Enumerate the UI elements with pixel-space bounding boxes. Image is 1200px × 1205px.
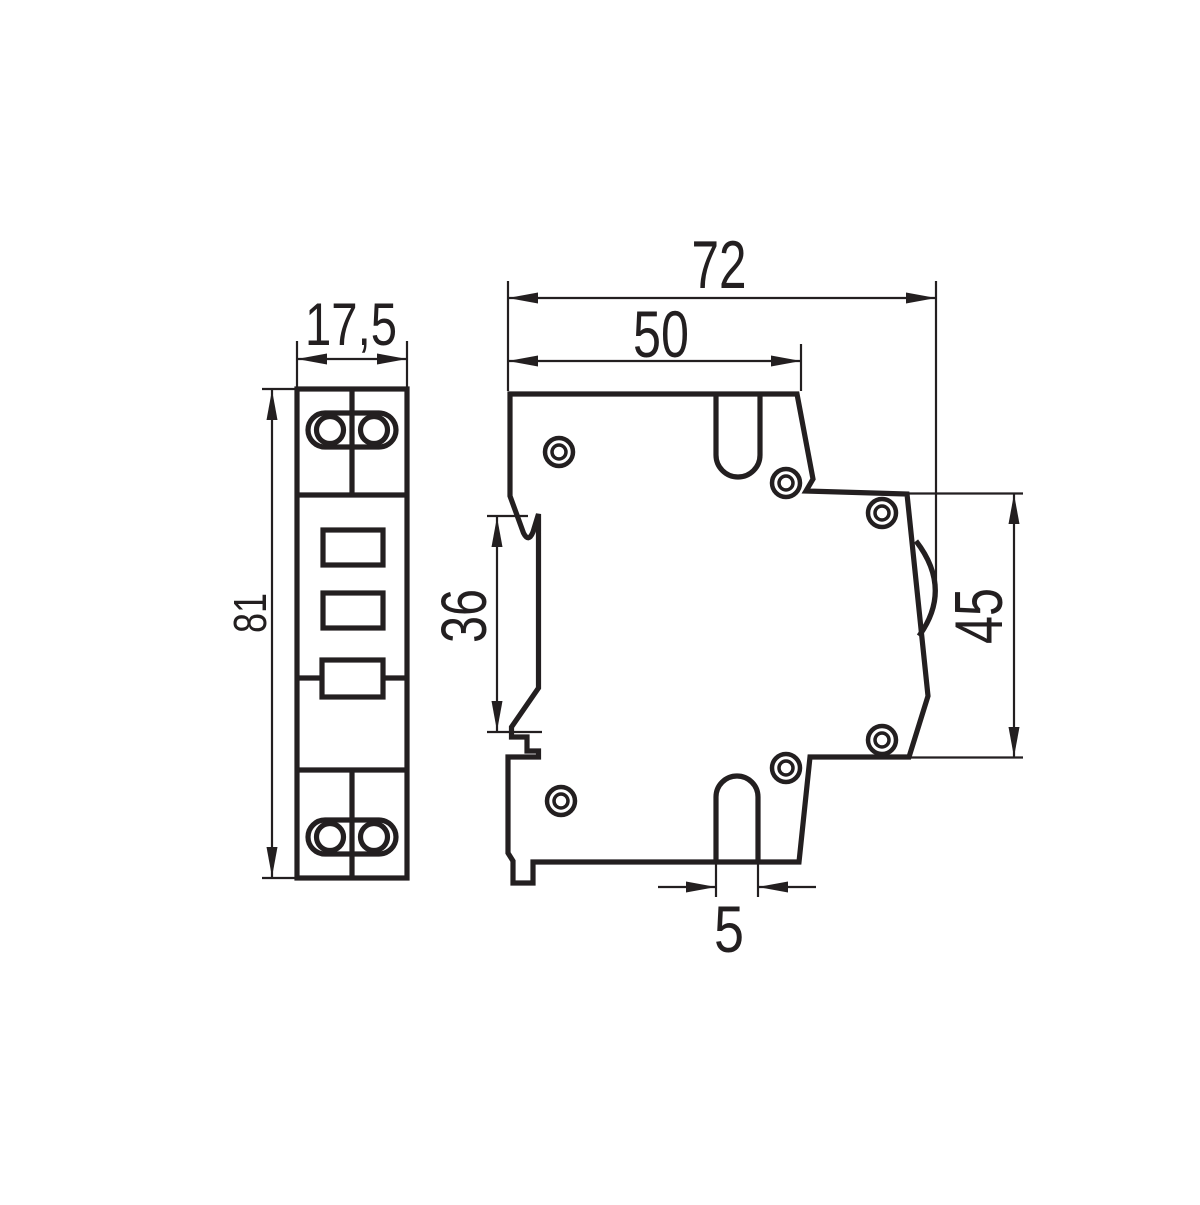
indicator-window-3 — [322, 660, 383, 697]
arrowhead-icon — [508, 356, 538, 367]
terminal-screw-icon — [317, 824, 344, 851]
technical-drawing-page: 17,5 81 72 50 36 45 5 — [0, 0, 1200, 1200]
terminal-screw-icon — [361, 417, 388, 444]
indicator-window-2 — [323, 593, 383, 628]
label-front-width: 17,5 — [305, 291, 397, 358]
label-din-slot-height: 36 — [428, 589, 500, 643]
label-depth-upper: 50 — [633, 297, 689, 371]
arrowhead-icon — [492, 701, 503, 731]
arrowhead-icon — [686, 882, 716, 893]
din-module-dimension-drawing: 17,5 81 72 50 36 45 5 — [0, 0, 1200, 1200]
screw-hole-icon — [547, 787, 575, 815]
arrowhead-icon — [1009, 494, 1020, 524]
label-slot-width: 5 — [714, 892, 744, 966]
screw-hole-icon — [545, 438, 573, 466]
terminal-screw-icon — [317, 417, 344, 444]
label-depth-total: 72 — [692, 227, 747, 303]
drawing-root: 17,5 81 72 50 36 45 5 — [224, 227, 1023, 966]
arrowhead-icon — [267, 390, 278, 420]
arrowhead-icon — [906, 293, 936, 304]
arrowhead-icon — [508, 293, 538, 304]
indicator-window-1 — [323, 530, 383, 565]
screw-hole-icon — [772, 754, 800, 782]
screw-hole-icon — [868, 726, 896, 754]
side-view — [508, 394, 935, 883]
screw-hole-icon — [772, 469, 800, 497]
label-front-height: 81 — [224, 593, 276, 633]
arrowhead-icon — [1009, 727, 1020, 757]
screw-hole-icon — [868, 499, 896, 527]
arrowhead-icon — [758, 882, 788, 893]
label-front-panel-height: 45 — [941, 588, 1017, 644]
front-view — [297, 389, 407, 878]
arrowhead-icon — [267, 847, 278, 877]
terminal-screw-icon — [361, 824, 388, 851]
arrowhead-icon — [771, 356, 801, 367]
arrowhead-icon — [492, 517, 503, 547]
